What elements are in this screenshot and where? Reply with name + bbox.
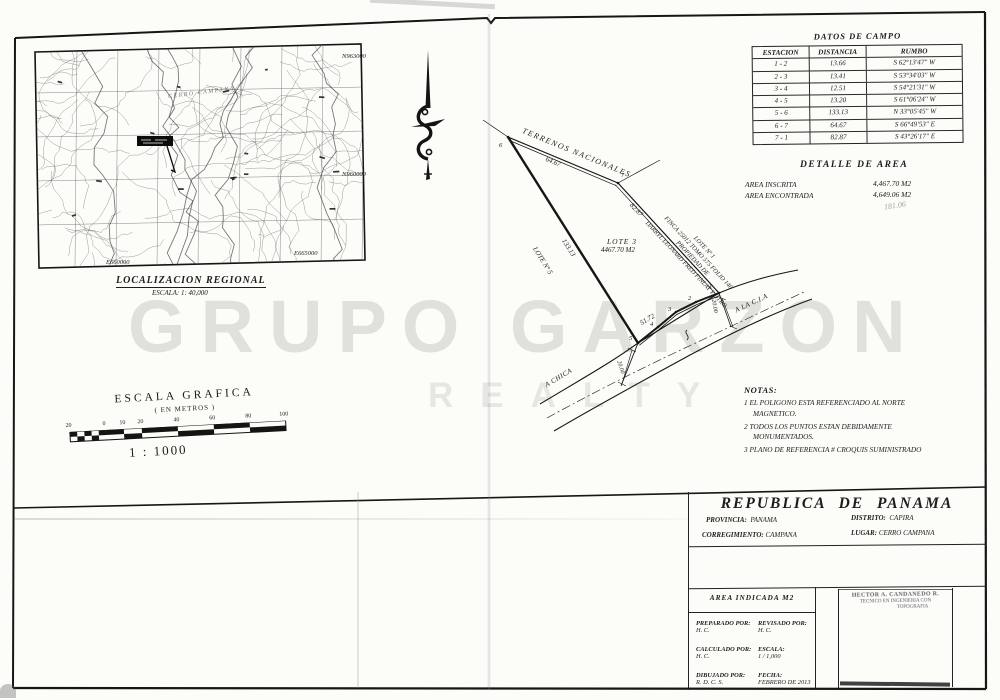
drawing-date: FECHA: FEBRERO DE 2013 bbox=[758, 672, 811, 686]
provincia-label: PROVINCIA: bbox=[706, 516, 747, 524]
cell-station: 5 - 6 bbox=[753, 108, 809, 120]
map-coord-e-right: E665000 bbox=[294, 250, 317, 257]
cell-distance: 133.13 bbox=[809, 107, 866, 119]
lugar-label: LUGAR: bbox=[851, 529, 877, 537]
stamp-border bbox=[838, 589, 839, 688]
revised-value: H. C. bbox=[758, 627, 807, 634]
cell-bearing: S 61°06'24" W bbox=[866, 94, 962, 106]
map-coord-e-left: E660000 bbox=[106, 259, 129, 266]
divider bbox=[815, 587, 816, 690]
corregimiento-value: CAMPANA bbox=[765, 531, 796, 539]
column-header-station: ESTACION bbox=[753, 47, 809, 59]
area-inscrita-label: AREA INSCRITA bbox=[745, 181, 797, 189]
cell-distance: 12.51 bbox=[809, 83, 866, 95]
map-scale-note: ESCALA: 1: 40,000 bbox=[152, 290, 208, 298]
vertex-label: 3 bbox=[668, 306, 671, 313]
vertex-label: 7 bbox=[621, 172, 624, 179]
drawn-by: DIBUJADO POR: R. D. C. S. bbox=[696, 672, 745, 686]
notes-block: NOTAS: 1 EL POLIGONO ESTA REFERENCIADO A… bbox=[744, 386, 976, 455]
table-row: 6 - 7 64.67 S 66°49'53" E bbox=[753, 118, 962, 132]
stamp-title2: TOPOGRAFIA bbox=[840, 604, 951, 611]
scale-tick: 0 bbox=[102, 421, 105, 428]
area-encontrada-label: AREA ENCONTRADA bbox=[745, 192, 813, 200]
cell-distance: 82.87 bbox=[809, 132, 866, 144]
cell-bearing: S 43°26'17" E bbox=[866, 131, 962, 143]
lugar-value: CERRO CAMPANA bbox=[879, 529, 935, 537]
watermark-brand: GRUPO GARZON bbox=[128, 284, 921, 369]
paper-edge-mark bbox=[370, 0, 495, 9]
prepared-label: PREPARADO POR: bbox=[696, 620, 750, 627]
table-row: 3 - 4 12.51 S 54°21'31" W bbox=[753, 81, 962, 95]
site-marker bbox=[137, 136, 175, 172]
revised-by: REVISADO POR: H. C. bbox=[758, 620, 807, 634]
scale-label: ESCALA: bbox=[758, 646, 785, 653]
stamp-smudge bbox=[840, 681, 950, 686]
area-encontrada-value: 4,649.06 M2 bbox=[873, 191, 911, 199]
regional-map bbox=[25, 40, 370, 275]
boundary-owner-label: TERRENOS NACIONALES bbox=[521, 127, 633, 180]
title-block-left-border bbox=[688, 492, 689, 690]
watermark-realty: REALTY bbox=[428, 376, 727, 416]
cell-distance: 64.67 bbox=[809, 120, 866, 132]
map-coord-n-top: N963000 bbox=[342, 53, 366, 60]
scale-ratio: 1 : 1000 bbox=[129, 442, 188, 461]
provincia-value: PANAMA bbox=[750, 516, 777, 524]
handwritten-note: 181.06 bbox=[883, 201, 906, 213]
corregimiento-label: CORREGIMIENTO: bbox=[702, 531, 764, 539]
table-row: 4 - 5 13.20 S 61°06'24" W bbox=[753, 93, 962, 107]
drawn-value: R. D. C. S. bbox=[696, 679, 745, 686]
cell-station: 4 - 5 bbox=[753, 96, 809, 108]
area-detail-title: DETALLE DE AREA bbox=[800, 160, 908, 170]
lot-name: LOTE 3 bbox=[607, 238, 637, 246]
cell-station: 1 - 2 bbox=[753, 59, 809, 71]
surveyor-stamp: HECTOR A. CANDANEDO R. TECNICO EN INGENI… bbox=[840, 591, 951, 611]
table-row: 7 - 1 82.87 S 43°26'17" E bbox=[753, 130, 962, 144]
title-block: REPUBLICA DE PANAMA PROVINCIA: PANAMA DI… bbox=[688, 490, 986, 690]
note-item: 3 PLANO DE REFERENCIA # CROQUIS SUMINIST… bbox=[744, 445, 985, 455]
area-inscrita-value: 4,467.70 M2 bbox=[873, 180, 911, 188]
country-title: REPUBLICA DE PANAMA bbox=[688, 495, 986, 512]
scanned-survey-plan: GRUPO GARZON REALTY bbox=[0, 0, 1000, 700]
stamp-border bbox=[952, 588, 953, 687]
field-data-title: DATOS DE CAMPO bbox=[751, 30, 963, 42]
note-item: 2 TODOS LOS PUNTOS ESTAN DEBIDAMENTE MON… bbox=[744, 422, 921, 442]
corner-smudge bbox=[0, 684, 16, 698]
vertex-label: 1 bbox=[709, 283, 712, 290]
vertex-label: 6 bbox=[499, 142, 502, 149]
revised-label: REVISADO POR: bbox=[758, 620, 807, 627]
cell-station: 6 - 7 bbox=[753, 120, 809, 132]
edge-5-6-length: 133.13 bbox=[559, 238, 576, 258]
drawn-label: DIBUJADO POR: bbox=[696, 672, 745, 679]
prepared-value: H. C. bbox=[696, 627, 750, 634]
drawing-scale: ESCALA: 1 / 1,000 bbox=[758, 646, 785, 660]
scale-tick: 10 bbox=[119, 420, 125, 427]
cell-distance: 13.66 bbox=[809, 58, 866, 70]
fold-crease-vertical-2 bbox=[357, 492, 359, 688]
cell-station: 2 - 3 bbox=[753, 71, 809, 83]
field-data-table: DATOS DE CAMPO ESTACION DISTANCIA RUMBO … bbox=[751, 30, 964, 146]
stamp-border bbox=[838, 589, 953, 590]
date-label: FECHA: bbox=[758, 672, 811, 679]
cell-bearing: S 62°13'47" W bbox=[866, 57, 962, 69]
column-header-bearing: RUMBO bbox=[866, 45, 962, 57]
scale-tick: 40 bbox=[173, 417, 179, 424]
scale-tick: 100 bbox=[279, 411, 288, 418]
vertex-label: 4 bbox=[650, 321, 653, 328]
calculated-label: CALCULADO POR: bbox=[696, 646, 751, 653]
calculated-value: H. C. bbox=[696, 653, 751, 660]
table-row: 2 - 3 13.41 S 53°34'03" W bbox=[753, 69, 962, 83]
scale-tick: 60 bbox=[209, 415, 215, 422]
prepared-by: PREPARADO POR: H. C. bbox=[696, 620, 750, 634]
neighbor-lot-5-label: LOTE Nº 5 bbox=[530, 246, 553, 276]
vertex-label: 2 bbox=[688, 295, 691, 302]
date-value: FEBRERO DE 2013 bbox=[758, 679, 811, 686]
note-item: 1 EL POLIGONO ESTA REFERENCIADO AL NORTE… bbox=[744, 398, 929, 418]
scale-value: 1 / 1,000 bbox=[758, 653, 785, 660]
distrito-label: DISTRITO: bbox=[851, 514, 886, 522]
distrito-value: CAPIRA bbox=[889, 514, 913, 522]
cell-bearing: S 66°49'53" E bbox=[866, 119, 962, 131]
cell-station: 7 - 1 bbox=[753, 133, 809, 145]
notes-title: NOTAS: bbox=[744, 386, 976, 395]
divider bbox=[688, 612, 815, 613]
graphic-scale: ESCALA GRAFICA ( EN METROS ) 20 0 10 20 … bbox=[66, 384, 303, 419]
map-title: LOCALIZACION REGIONAL bbox=[116, 275, 266, 288]
column-header-distance: DISTANCIA bbox=[809, 46, 866, 58]
scale-tick: 20 bbox=[137, 419, 143, 426]
fold-crease-horizontal bbox=[14, 518, 690, 520]
table-row: 1 - 2 13.66 S 62°13'47" W bbox=[753, 56, 962, 70]
table-row: 5 - 6 133.13 N 33°05'45" W bbox=[753, 105, 962, 119]
divider bbox=[688, 544, 986, 548]
north-arrow-icon bbox=[408, 48, 448, 183]
cell-station: 3 - 4 bbox=[753, 83, 809, 95]
map-coord-n-mid: N960000 bbox=[342, 171, 366, 178]
edge-6-7-length: 64.67 bbox=[544, 156, 561, 169]
cell-distance: 13.41 bbox=[809, 71, 866, 83]
cell-bearing: N 33°05'45" W bbox=[866, 106, 962, 118]
scale-tick: 80 bbox=[245, 413, 251, 420]
cell-bearing: S 54°21'31" W bbox=[866, 82, 962, 94]
area-indicada-label: AREA INDICADA M2 bbox=[690, 594, 814, 602]
calculated-by: CALCULADO POR: H. C. bbox=[696, 646, 751, 660]
table-header-row: ESTACION DISTANCIA RUMBO bbox=[753, 45, 962, 58]
vertex-label: 5 bbox=[629, 335, 632, 342]
cell-bearing: S 53°34'03" W bbox=[866, 70, 962, 82]
lot-area: 4467.70 M2 bbox=[601, 247, 635, 255]
cell-distance: 13.20 bbox=[809, 95, 866, 107]
scale-tick: 20 bbox=[65, 423, 71, 430]
